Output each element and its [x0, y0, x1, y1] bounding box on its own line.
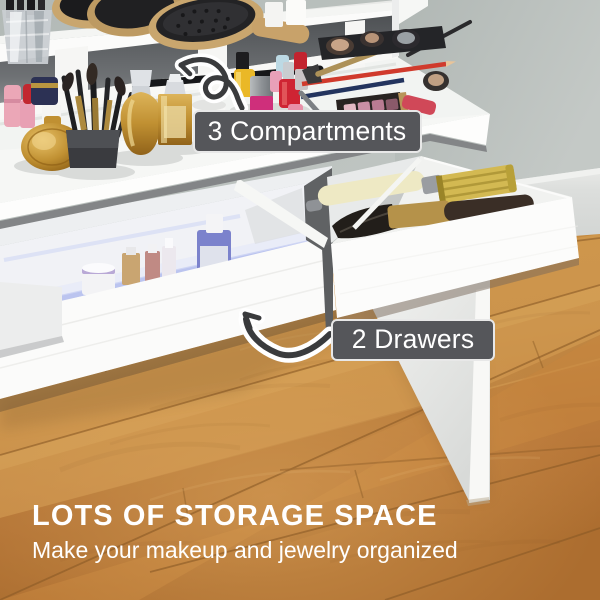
svg-text:Make your makeup and jewelry o: Make your makeup and jewelry organized [32, 537, 458, 563]
svg-text:2 Drawers: 2 Drawers [352, 324, 475, 354]
svg-text:LOTS OF STORAGE SPACE: LOTS OF STORAGE SPACE [32, 500, 438, 532]
svg-text:3 Compartments: 3 Compartments [208, 116, 407, 146]
